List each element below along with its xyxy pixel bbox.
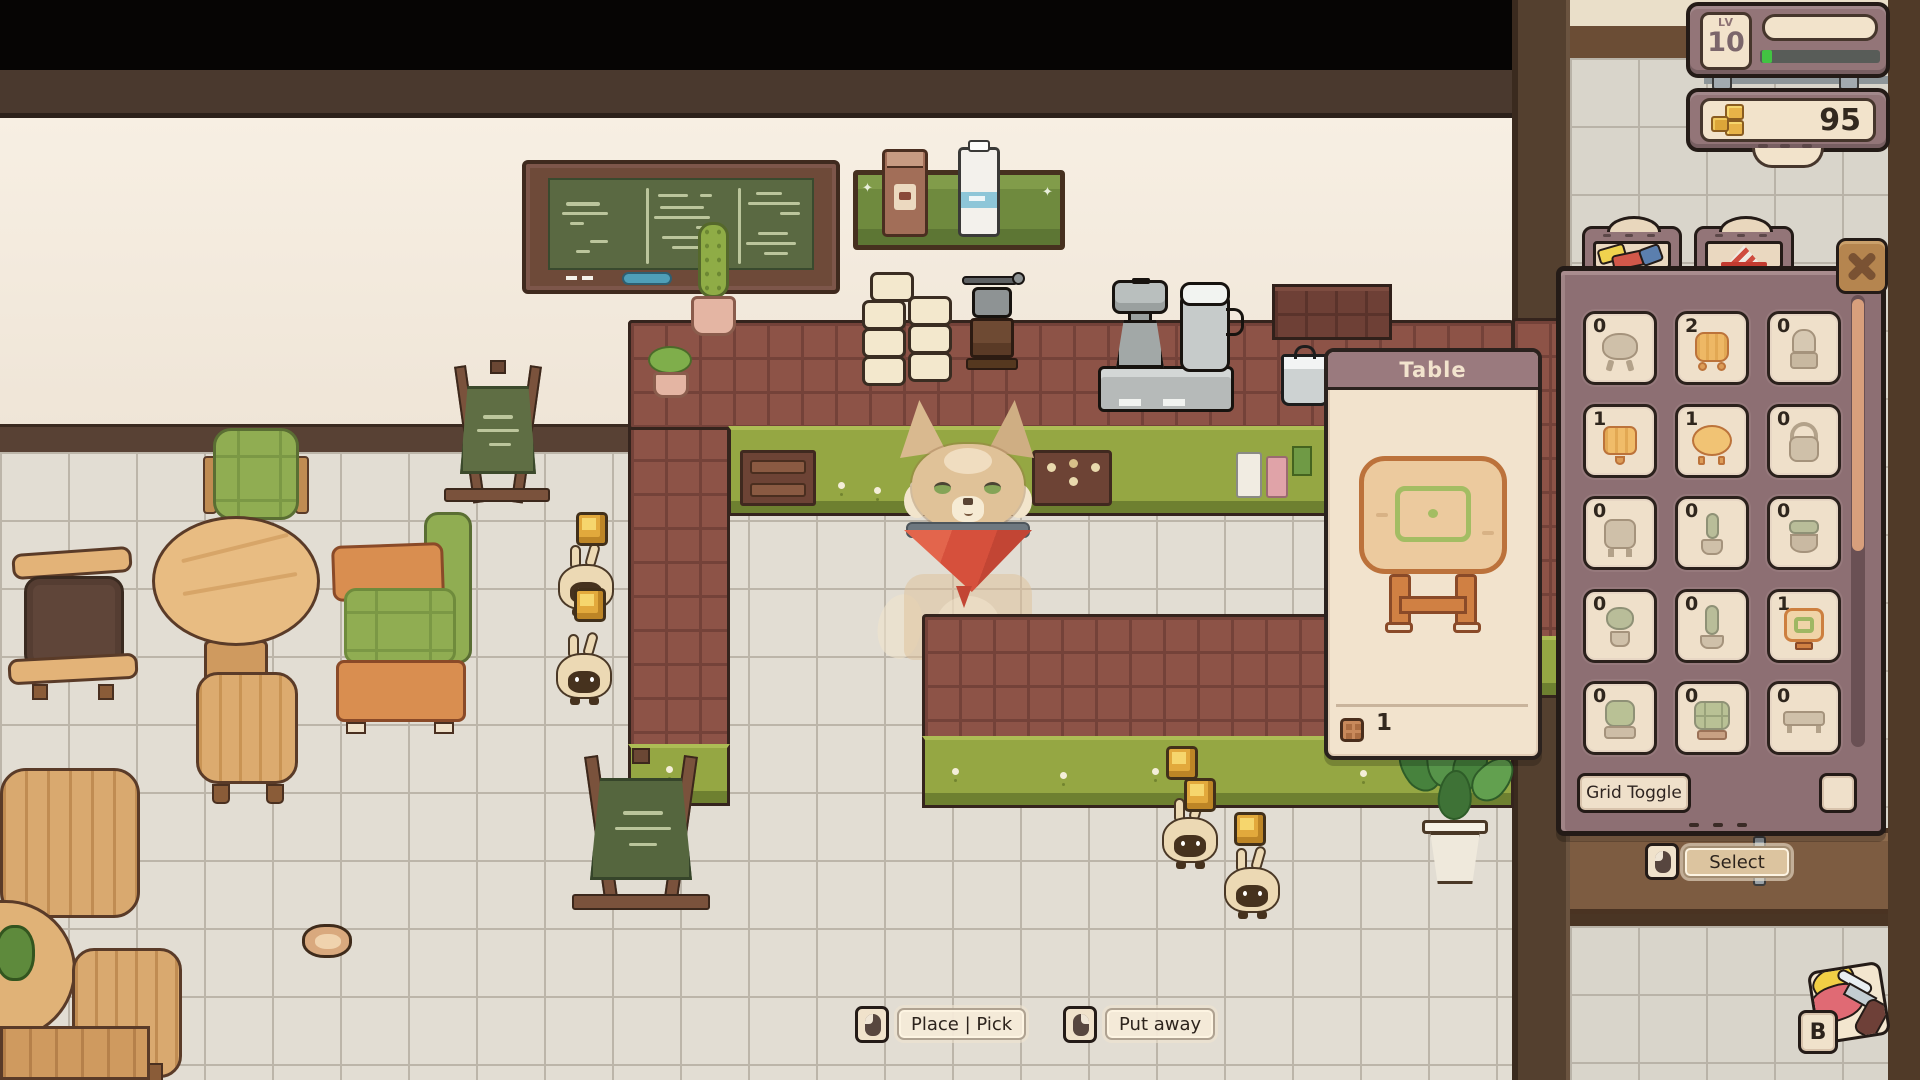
inventory-slot-side-table[interactable]: 0 [1583,496,1657,570]
arm-chair-icon [1781,419,1827,467]
potted-plant-small[interactable] [646,346,700,400]
put-away-button[interactable]: Put away [1105,1008,1215,1040]
panel-handle-dots [1689,823,1699,827]
coffee-grinder [960,272,1026,376]
inventory-slot-stool[interactable]: 0 [1583,311,1657,385]
inventory-slot-wood-stool[interactable]: 2 [1675,311,1749,385]
espresso-machine [1094,280,1254,416]
dark-cushion-chair[interactable] [2,538,148,706]
money-panel: 95 [1686,88,1890,152]
crate-icon [1340,718,1364,742]
menu-board-small [1032,450,1112,506]
mouse-left-icon [855,1006,889,1043]
inventory-grid: 020110000001000 [1561,271,1881,831]
round-table-icon [1689,419,1735,467]
planter-icon [1781,511,1827,559]
scrollbar-thumb[interactable] [1852,299,1864,551]
side-table-icon [1597,511,1643,559]
build-panel: 020110000001000 Grid Toggle [1556,266,1886,836]
square-table-icon [1597,419,1643,467]
wood-planks[interactable] [0,1026,150,1080]
counter-crate [1272,284,1392,340]
inventory-slot-square-table[interactable]: 1 [1583,404,1657,478]
bread-on-floor[interactable] [302,924,352,958]
counter-books [1236,446,1314,500]
drawer-panel [740,450,816,506]
inventory-slot-cushion-chair[interactable]: 0 [1583,681,1657,755]
right-shelf-shadow [1570,914,1888,926]
brush-key-label: B [1810,1020,1827,1045]
stool-icon [1597,326,1643,374]
item-popup: Table 1 [1324,348,1542,760]
close-button[interactable] [1836,238,1888,294]
round-table[interactable] [152,512,322,692]
tip-coin[interactable] [1184,778,1216,812]
xp-fill [1762,50,1772,63]
potted-cactus-icon [1689,511,1735,559]
inventory-slot-potted-cactus[interactable]: 0 [1675,496,1749,570]
tip-coin[interactable] [576,512,608,546]
potted-cactus[interactable] [688,222,740,342]
mouse-right-icon [1063,1006,1097,1043]
inventory-slot-planter[interactable]: 0 [1767,496,1841,570]
inventory-slot-round-table[interactable]: 1 [1675,404,1749,478]
inventory-slot-tall-cactus[interactable]: 0 [1675,589,1749,663]
xp-sub-bar [1760,50,1880,63]
tip-coin[interactable] [1166,746,1198,780]
coin-stack-icon [1711,102,1763,138]
wall-shelf[interactable]: ✦ ✦ [853,170,1065,250]
table-icon [1781,604,1827,652]
a-frame-sign[interactable] [444,360,552,512]
orange-armchair[interactable] [328,512,478,742]
money-field: 95 [1700,98,1876,142]
mouse-left-icon [1645,843,1679,880]
cushion-chair-icon [1597,696,1643,744]
brush-keycap: B [1798,1010,1838,1054]
tip-coin[interactable] [574,588,606,622]
inventory-slot-long-table[interactable]: 0 [1767,681,1841,755]
wood-stool[interactable] [190,668,306,808]
popup-count: 1 [1376,710,1392,736]
ceiling-beam [0,62,1512,118]
place-pick-label: Place | Pick [911,1014,1012,1035]
level-badge: LV 10 [1700,12,1752,70]
level-value: 10 [1703,29,1749,56]
tip-coin[interactable] [1234,812,1266,846]
xp-bar [1762,14,1878,41]
panel-scrollbar [1851,295,1865,747]
inventory-slot-table[interactable]: 1 [1767,589,1841,663]
inventory-slot-sofa[interactable]: 0 [1675,681,1749,755]
level-panel: LV 10 [1686,2,1890,78]
letterbox-top [0,0,1512,70]
menu-chalkboard[interactable] [522,160,840,294]
select-label: Select [1709,852,1765,873]
popup-header: Table [1328,352,1538,390]
chocolate-milk-carton [882,149,928,237]
sofa-icon [1689,696,1735,744]
potted-plant-icon [1597,604,1643,652]
money-tab-bump [1752,148,1824,168]
grid-toggle-label: Grid Toggle [1586,783,1682,803]
cup-stack-2 [904,296,960,390]
inventory-slot-arm-chair[interactable]: 0 [1767,404,1841,478]
high-chair-icon [1781,326,1827,374]
paint-brush-button[interactable]: B [1798,958,1894,1062]
sparkle-icon: ✦ [862,181,873,196]
a-frame-sign-icon [1705,241,1783,269]
big-stool[interactable] [0,768,140,918]
grid-checkbox[interactable] [1819,773,1857,813]
put-away-label: Put away [1119,1014,1201,1035]
long-table-icon [1781,696,1827,744]
chalk-eraser [622,272,672,285]
table-sprite [1359,456,1509,638]
milk-pail [1281,354,1329,406]
inventory-slot-potted-plant[interactable]: 0 [1583,589,1657,663]
inventory-slot-high-chair[interactable]: 0 [1767,311,1841,385]
game-viewport: ✦ ✦ [0,0,1920,1080]
milk-carton [958,147,1000,237]
place-pick-button[interactable]: Place | Pick [897,1008,1026,1040]
select-button[interactable]: Select [1683,846,1791,878]
money-value: 95 [1819,103,1861,138]
bunny-customer [554,634,616,706]
sparkle-icon: ✦ [1042,185,1053,200]
tall-cactus-icon [1689,604,1735,652]
bunny-customer [1222,848,1278,914]
far-right-frame [1888,0,1920,1080]
popup-title: Table [1399,358,1466,382]
grid-toggle-button[interactable]: Grid Toggle [1577,773,1691,813]
wood-stool-icon [1689,326,1735,374]
a-frame-sign-2[interactable] [570,748,712,920]
bed-icon [1593,241,1671,269]
